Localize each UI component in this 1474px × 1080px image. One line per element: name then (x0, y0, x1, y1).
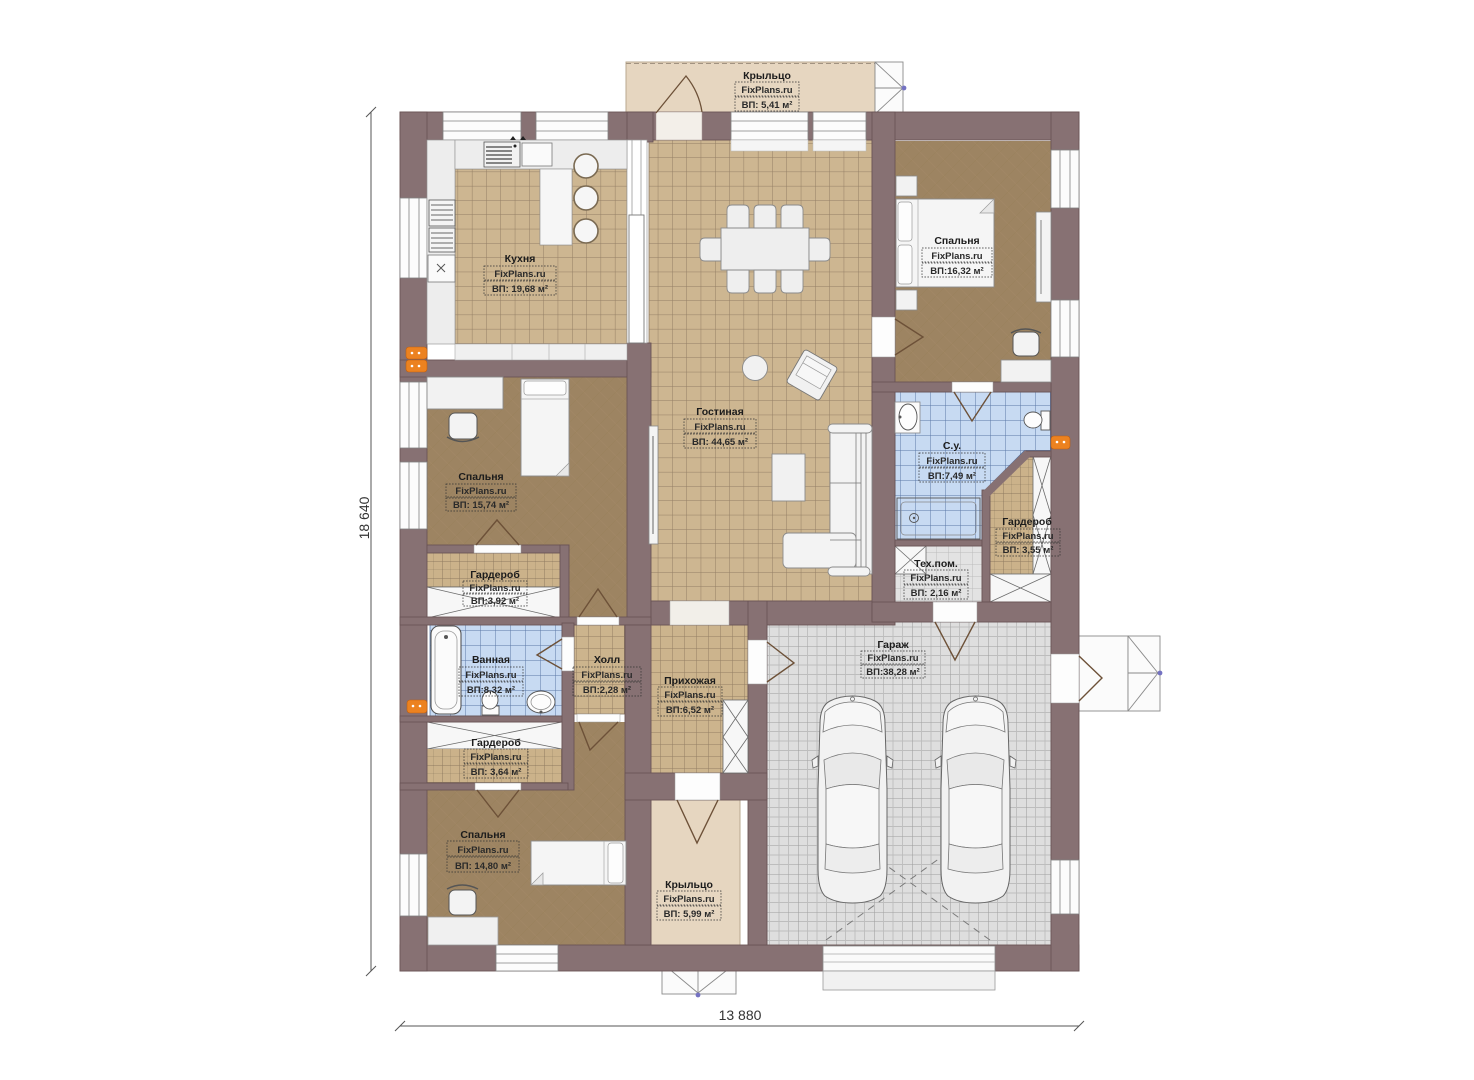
svg-text:18 640: 18 640 (356, 496, 372, 539)
svg-text:Крыльцо: Крыльцо (665, 879, 713, 891)
svg-text:ВП:2,28 м²: ВП:2,28 м² (583, 685, 631, 696)
svg-text:ВП: 19,68 м²: ВП: 19,68 м² (492, 284, 548, 295)
svg-text:ВП: 14,80 м²: ВП: 14,80 м² (455, 861, 511, 872)
svg-text:Гостиная: Гостиная (696, 406, 743, 418)
svg-text:ВП: 15,74 м²: ВП: 15,74 м² (453, 500, 509, 511)
svg-text:Прихожая: Прихожая (664, 675, 716, 687)
svg-text:ВП: 5,41 м²: ВП: 5,41 м² (742, 100, 793, 111)
svg-text:FixPlans.ru: FixPlans.ru (741, 85, 792, 96)
svg-text:ВП: 3,55 м²: ВП: 3,55 м² (1003, 545, 1054, 556)
svg-text:ВП:8,32 м²: ВП:8,32 м² (467, 685, 515, 696)
svg-text:Тех.пом.: Тех.пом. (914, 558, 958, 570)
svg-text:ВП:7,49 м²: ВП:7,49 м² (928, 471, 976, 482)
svg-text:Гардероб: Гардероб (471, 737, 521, 749)
svg-text:FixPlans.ru: FixPlans.ru (455, 486, 506, 497)
svg-text:FixPlans.ru: FixPlans.ru (469, 583, 520, 594)
svg-text:Крыльцо: Крыльцо (743, 70, 791, 82)
svg-text:ВП: 44,65 м²: ВП: 44,65 м² (692, 437, 748, 448)
svg-text:ВП:3,92 м²: ВП:3,92 м² (471, 596, 519, 607)
svg-text:Спальня: Спальня (460, 829, 505, 841)
svg-text:ВП:38,28 м²: ВП:38,28 м² (866, 667, 919, 678)
svg-text:Гараж: Гараж (877, 639, 909, 651)
svg-text:Гардероб: Гардероб (470, 569, 520, 581)
svg-text:ВП:6,52 м²: ВП:6,52 м² (666, 705, 714, 716)
svg-text:С.у.: С.у. (943, 440, 961, 452)
svg-text:FixPlans.ru: FixPlans.ru (664, 690, 715, 701)
svg-text:Гардероб: Гардероб (1002, 516, 1052, 528)
svg-text:FixPlans.ru: FixPlans.ru (931, 251, 982, 262)
svg-text:Спальня: Спальня (458, 471, 503, 483)
svg-text:ВП: 2,16 м²: ВП: 2,16 м² (911, 588, 962, 599)
svg-text:FixPlans.ru: FixPlans.ru (867, 653, 918, 664)
svg-text:FixPlans.ru: FixPlans.ru (926, 456, 977, 467)
svg-text:FixPlans.ru: FixPlans.ru (1002, 531, 1053, 542)
svg-text:FixPlans.ru: FixPlans.ru (910, 573, 961, 584)
svg-text:FixPlans.ru: FixPlans.ru (663, 894, 714, 905)
svg-text:FixPlans.ru: FixPlans.ru (694, 422, 745, 433)
svg-text:ВП: 3,64 м²: ВП: 3,64 м² (471, 767, 522, 778)
svg-text:FixPlans.ru: FixPlans.ru (465, 670, 516, 681)
svg-text:Спальня: Спальня (934, 235, 979, 247)
svg-text:FixPlans.ru: FixPlans.ru (581, 670, 632, 681)
svg-text:13 880: 13 880 (719, 1007, 762, 1023)
svg-text:FixPlans.ru: FixPlans.ru (457, 845, 508, 856)
svg-text:Холл: Холл (594, 654, 620, 666)
svg-text:FixPlans.ru: FixPlans.ru (494, 269, 545, 280)
svg-text:FixPlans.ru: FixPlans.ru (470, 752, 521, 763)
svg-text:ВП: 5,99 м²: ВП: 5,99 м² (664, 909, 715, 920)
svg-text:Кухня: Кухня (505, 253, 536, 265)
svg-text:Ванная: Ванная (472, 654, 510, 666)
svg-text:ВП:16,32 м²: ВП:16,32 м² (930, 266, 983, 277)
